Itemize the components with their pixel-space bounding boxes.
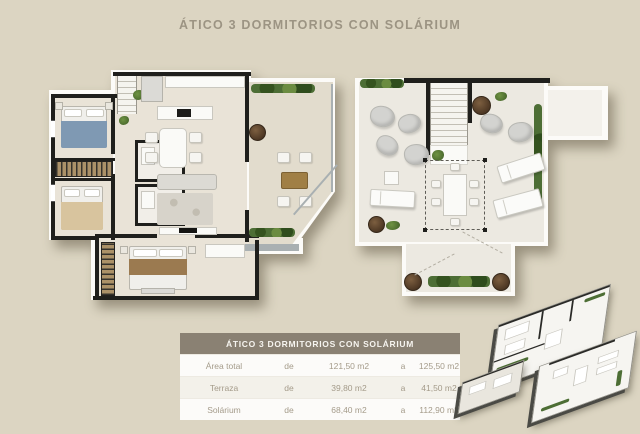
- wall: [245, 74, 249, 162]
- terrace-chair: [277, 152, 290, 163]
- from-value: 68,40 m2: [310, 405, 388, 415]
- floor-plan-solarium: [352, 64, 614, 311]
- wall: [255, 240, 259, 300]
- hedge: [251, 84, 315, 93]
- page-title: ÁTICO 3 DORMITORIOS CON SOLÁRIUM: [0, 18, 640, 32]
- wall: [51, 178, 115, 181]
- iso-hedge: [541, 398, 570, 412]
- wall: [95, 234, 157, 238]
- wall: [95, 240, 99, 300]
- wall: [51, 236, 99, 240]
- stairwell: [430, 83, 468, 145]
- pergola-post: [423, 228, 427, 232]
- iso-wall: [569, 300, 574, 322]
- planter: [404, 273, 422, 291]
- range-word: a: [388, 405, 418, 415]
- dining-chair: [145, 132, 158, 143]
- planter: [249, 124, 266, 141]
- outdoor-chair: [431, 180, 441, 188]
- plan-content: [352, 64, 614, 311]
- terrace-chair: [277, 196, 290, 207]
- dining-chair: [145, 152, 158, 163]
- pillow: [159, 249, 183, 257]
- wall: [93, 296, 259, 300]
- range-word: a: [388, 361, 418, 371]
- wardrobe: [55, 161, 113, 177]
- nightstand: [55, 102, 63, 110]
- range-word: a: [388, 383, 418, 393]
- iso-hedge: [616, 370, 623, 387]
- kitchen-tall-units: [141, 76, 163, 102]
- window: [51, 184, 55, 202]
- brochure-page: { "title": "ÁTICO 3 DORMITORIOS CON SOLÁ…: [0, 0, 640, 434]
- nightstand: [120, 246, 128, 254]
- kitchen-counter: [165, 76, 245, 88]
- outdoor-chair: [469, 198, 479, 206]
- pillow: [133, 249, 157, 257]
- bed-bench: [141, 288, 175, 294]
- shower: [141, 191, 155, 209]
- table-row-area-total: Área total de 121,50 m2 a 125,50 m2: [180, 354, 460, 376]
- pergola-post: [483, 228, 487, 232]
- from-value: 121,50 m2: [310, 361, 388, 371]
- floor-plan-main: [45, 62, 338, 310]
- pillow: [86, 109, 104, 117]
- tv: [179, 228, 197, 233]
- iso-room: [468, 381, 486, 396]
- pergola-post: [483, 158, 487, 162]
- to-value: 112,90 m2: [418, 405, 460, 415]
- terrace-table: [281, 172, 308, 189]
- nightstand: [188, 246, 196, 254]
- bed-master: [129, 246, 187, 290]
- row-label: Terraza: [180, 383, 268, 393]
- floor-landing: [548, 90, 602, 136]
- bed-double-beige: [61, 186, 103, 230]
- pillow: [84, 189, 101, 197]
- cooktop: [177, 109, 191, 117]
- blanket: [129, 259, 187, 275]
- outdoor-dining-table: [443, 174, 467, 216]
- dining-chair: [189, 132, 202, 143]
- iso-room: [573, 365, 589, 386]
- rug: [157, 193, 213, 225]
- planter: [472, 96, 491, 115]
- terrace-chair: [299, 152, 312, 163]
- row-label: Solárium: [180, 405, 268, 415]
- dining-table: [159, 128, 187, 168]
- area-table: ÁTICO 3 DORMITORIOS CON SOLÁRIUM Área to…: [180, 333, 460, 420]
- terrace-rail: [331, 84, 333, 192]
- iso-room: [552, 365, 568, 379]
- wall: [111, 174, 115, 240]
- area-table-header: ÁTICO 3 DORMITORIOS CON SOLÁRIUM: [180, 333, 460, 354]
- blanket: [61, 121, 107, 148]
- to-value: 41,50 m2: [418, 383, 460, 393]
- iso-room: [544, 328, 563, 349]
- floor-terrace: [249, 82, 333, 246]
- range-word: de: [268, 405, 310, 415]
- bed-double-blue: [61, 106, 107, 148]
- iso-wall: [538, 311, 544, 339]
- from-value: 39,80 m2: [310, 383, 388, 393]
- outdoor-chair: [431, 198, 441, 206]
- row-label: Área total: [180, 361, 268, 371]
- window: [51, 120, 55, 138]
- outdoor-chair: [469, 180, 479, 188]
- blanket: [61, 202, 103, 230]
- outdoor-chair: [450, 163, 460, 171]
- sun-lounger: [370, 189, 416, 208]
- dresser: [205, 244, 245, 258]
- table-row-solarium: Solárium de 68,40 m2 a 112,90 m2: [180, 398, 460, 420]
- outdoor-chair: [450, 218, 460, 226]
- pillow: [64, 109, 82, 117]
- to-value: 125,50 m2: [418, 361, 460, 371]
- hedge: [360, 79, 404, 88]
- plan-content: [45, 62, 338, 310]
- range-word: de: [268, 383, 310, 393]
- wardrobe: [101, 242, 115, 296]
- hedge: [249, 228, 295, 237]
- planter: [368, 216, 385, 233]
- pillow: [64, 189, 81, 197]
- side-table: [384, 171, 399, 185]
- range-word: de: [268, 361, 310, 371]
- iso-room: [492, 373, 512, 390]
- nightstand: [105, 102, 113, 110]
- dining-chair: [189, 152, 202, 163]
- table-row-terraza: Terraza de 39,80 m2 a 41,50 m2: [180, 376, 460, 398]
- isometric-plan-thumbnail: [462, 284, 640, 434]
- iso-sheet-lower: [458, 360, 525, 415]
- sofa: [157, 174, 217, 190]
- pergola-post: [423, 158, 427, 162]
- wall: [51, 94, 117, 98]
- iso-wall: [499, 285, 610, 327]
